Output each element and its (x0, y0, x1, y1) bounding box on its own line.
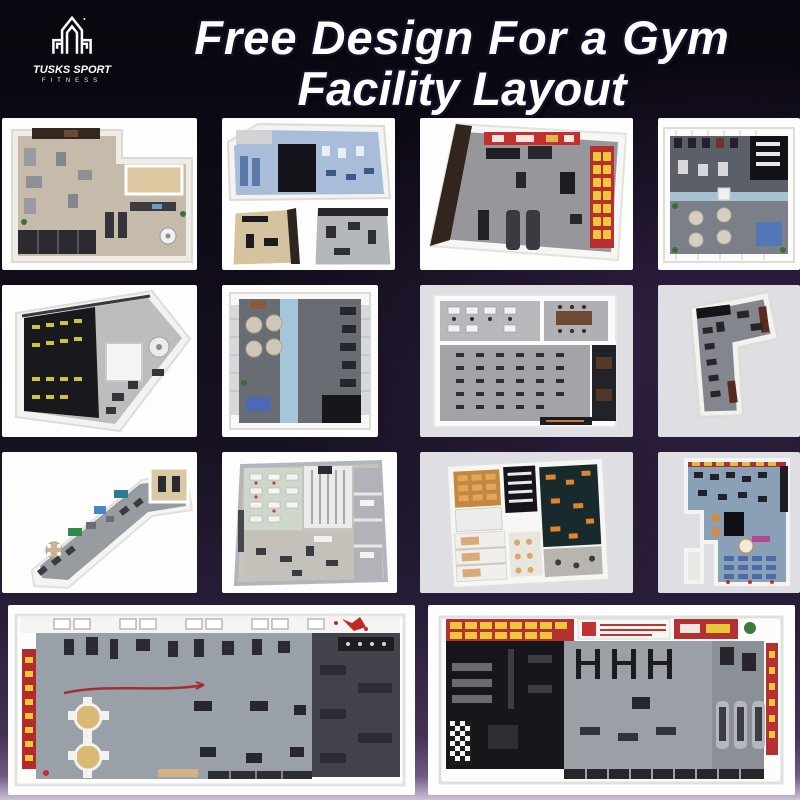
floorplan-art-4 (658, 118, 800, 270)
gym-layout-thumbnail-14 (428, 605, 795, 795)
floorplan-art-10 (222, 452, 397, 593)
brand-subtitle: FITNESS (30, 78, 114, 84)
gym-layout-thumbnail-12 (658, 452, 800, 593)
poster-background: TUSKS SPORT FITNESS Free Design For a Gy… (0, 0, 800, 800)
poster-title: Free Design For a Gym Facility Layout (128, 14, 796, 113)
gym-layout-thumbnail-11 (420, 452, 633, 593)
floorplan-art-2 (222, 118, 395, 270)
gym-layout-thumbnail-3 (420, 118, 633, 270)
brand-name: TUSKS SPORT (30, 64, 114, 76)
brand-logo: TUSKS SPORT FITNESS (30, 12, 114, 84)
gym-layout-thumbnail-4 (658, 118, 800, 270)
title-line-2: Facility Layout (128, 65, 796, 113)
floorplan-art-11 (420, 452, 633, 593)
floorplan-art-5 (2, 285, 197, 437)
floorplan-art-6 (222, 285, 378, 437)
gym-layout-thumbnail-8 (658, 285, 800, 437)
gym-layout-thumbnail-2 (222, 118, 395, 270)
gym-layout-thumbnail-5 (2, 285, 197, 437)
title-line-1: Free Design For a Gym (128, 14, 796, 62)
floorplan-art-7 (420, 285, 633, 437)
floorplan-art-8 (658, 285, 800, 437)
gym-layout-thumbnail-1 (2, 118, 197, 270)
gym-layout-thumbnail-10 (222, 452, 397, 593)
floorplan-art-13 (8, 605, 415, 795)
gym-layout-thumbnail-13 (8, 605, 415, 795)
tusks-monogram-icon (41, 12, 103, 62)
gym-layout-thumbnail-7 (420, 285, 633, 437)
floorplan-art-9 (2, 452, 197, 593)
floorplan-art-1 (2, 118, 197, 270)
gym-layout-thumbnail-6 (222, 285, 378, 437)
floorplan-art-3 (420, 118, 633, 270)
floorplan-art-12 (658, 452, 800, 593)
floorplan-art-14 (428, 605, 795, 795)
gym-layout-thumbnail-9 (2, 452, 197, 593)
